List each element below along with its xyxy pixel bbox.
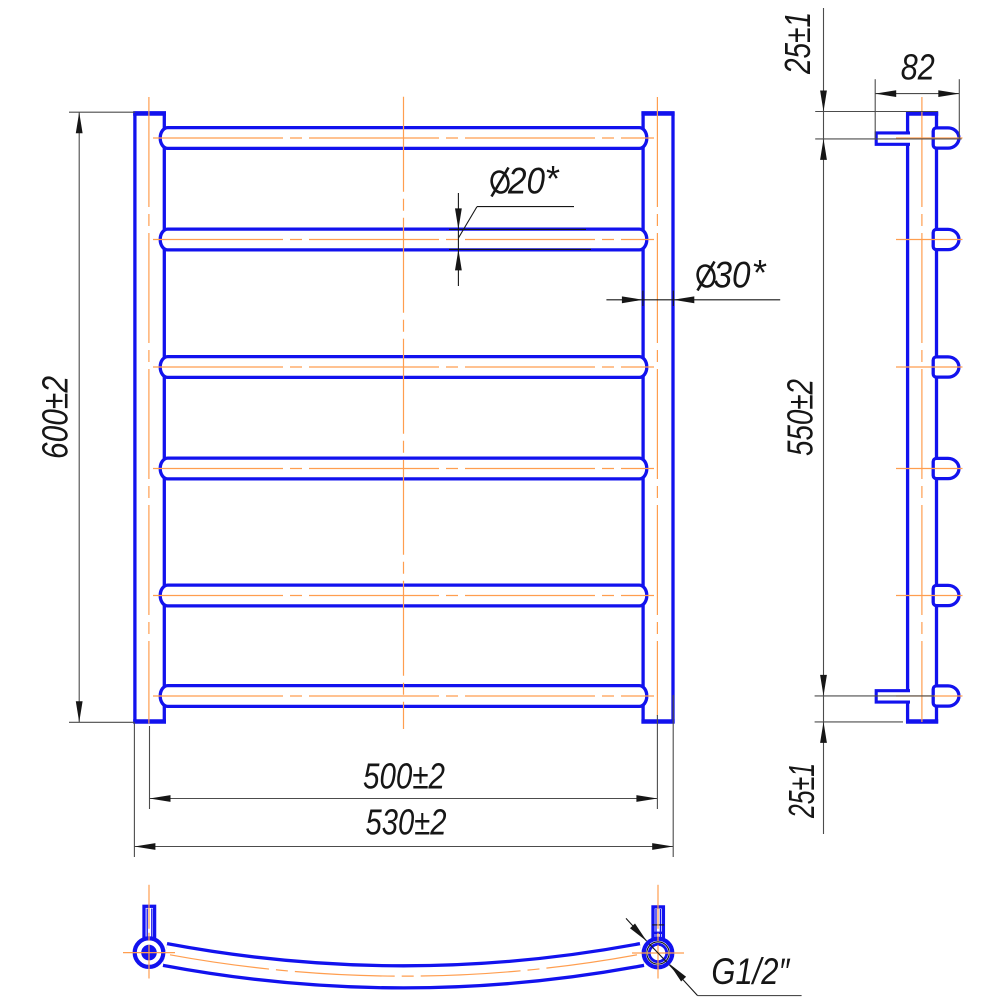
- svg-text:25±1: 25±1: [781, 763, 822, 819]
- svg-text:*: *: [751, 252, 766, 293]
- svg-text:30: 30: [714, 254, 751, 295]
- svg-text:550±2: 550±2: [780, 379, 821, 456]
- svg-text:*: *: [544, 158, 559, 199]
- svg-text:25±1: 25±1: [777, 12, 818, 75]
- svg-text:500±2: 500±2: [363, 756, 445, 797]
- svg-text:20: 20: [507, 160, 545, 201]
- svg-text:600±2: 600±2: [35, 376, 76, 459]
- svg-text:G1/2″: G1/2″: [711, 951, 791, 992]
- svg-text:530±2: 530±2: [366, 802, 447, 843]
- svg-text:82: 82: [901, 46, 935, 87]
